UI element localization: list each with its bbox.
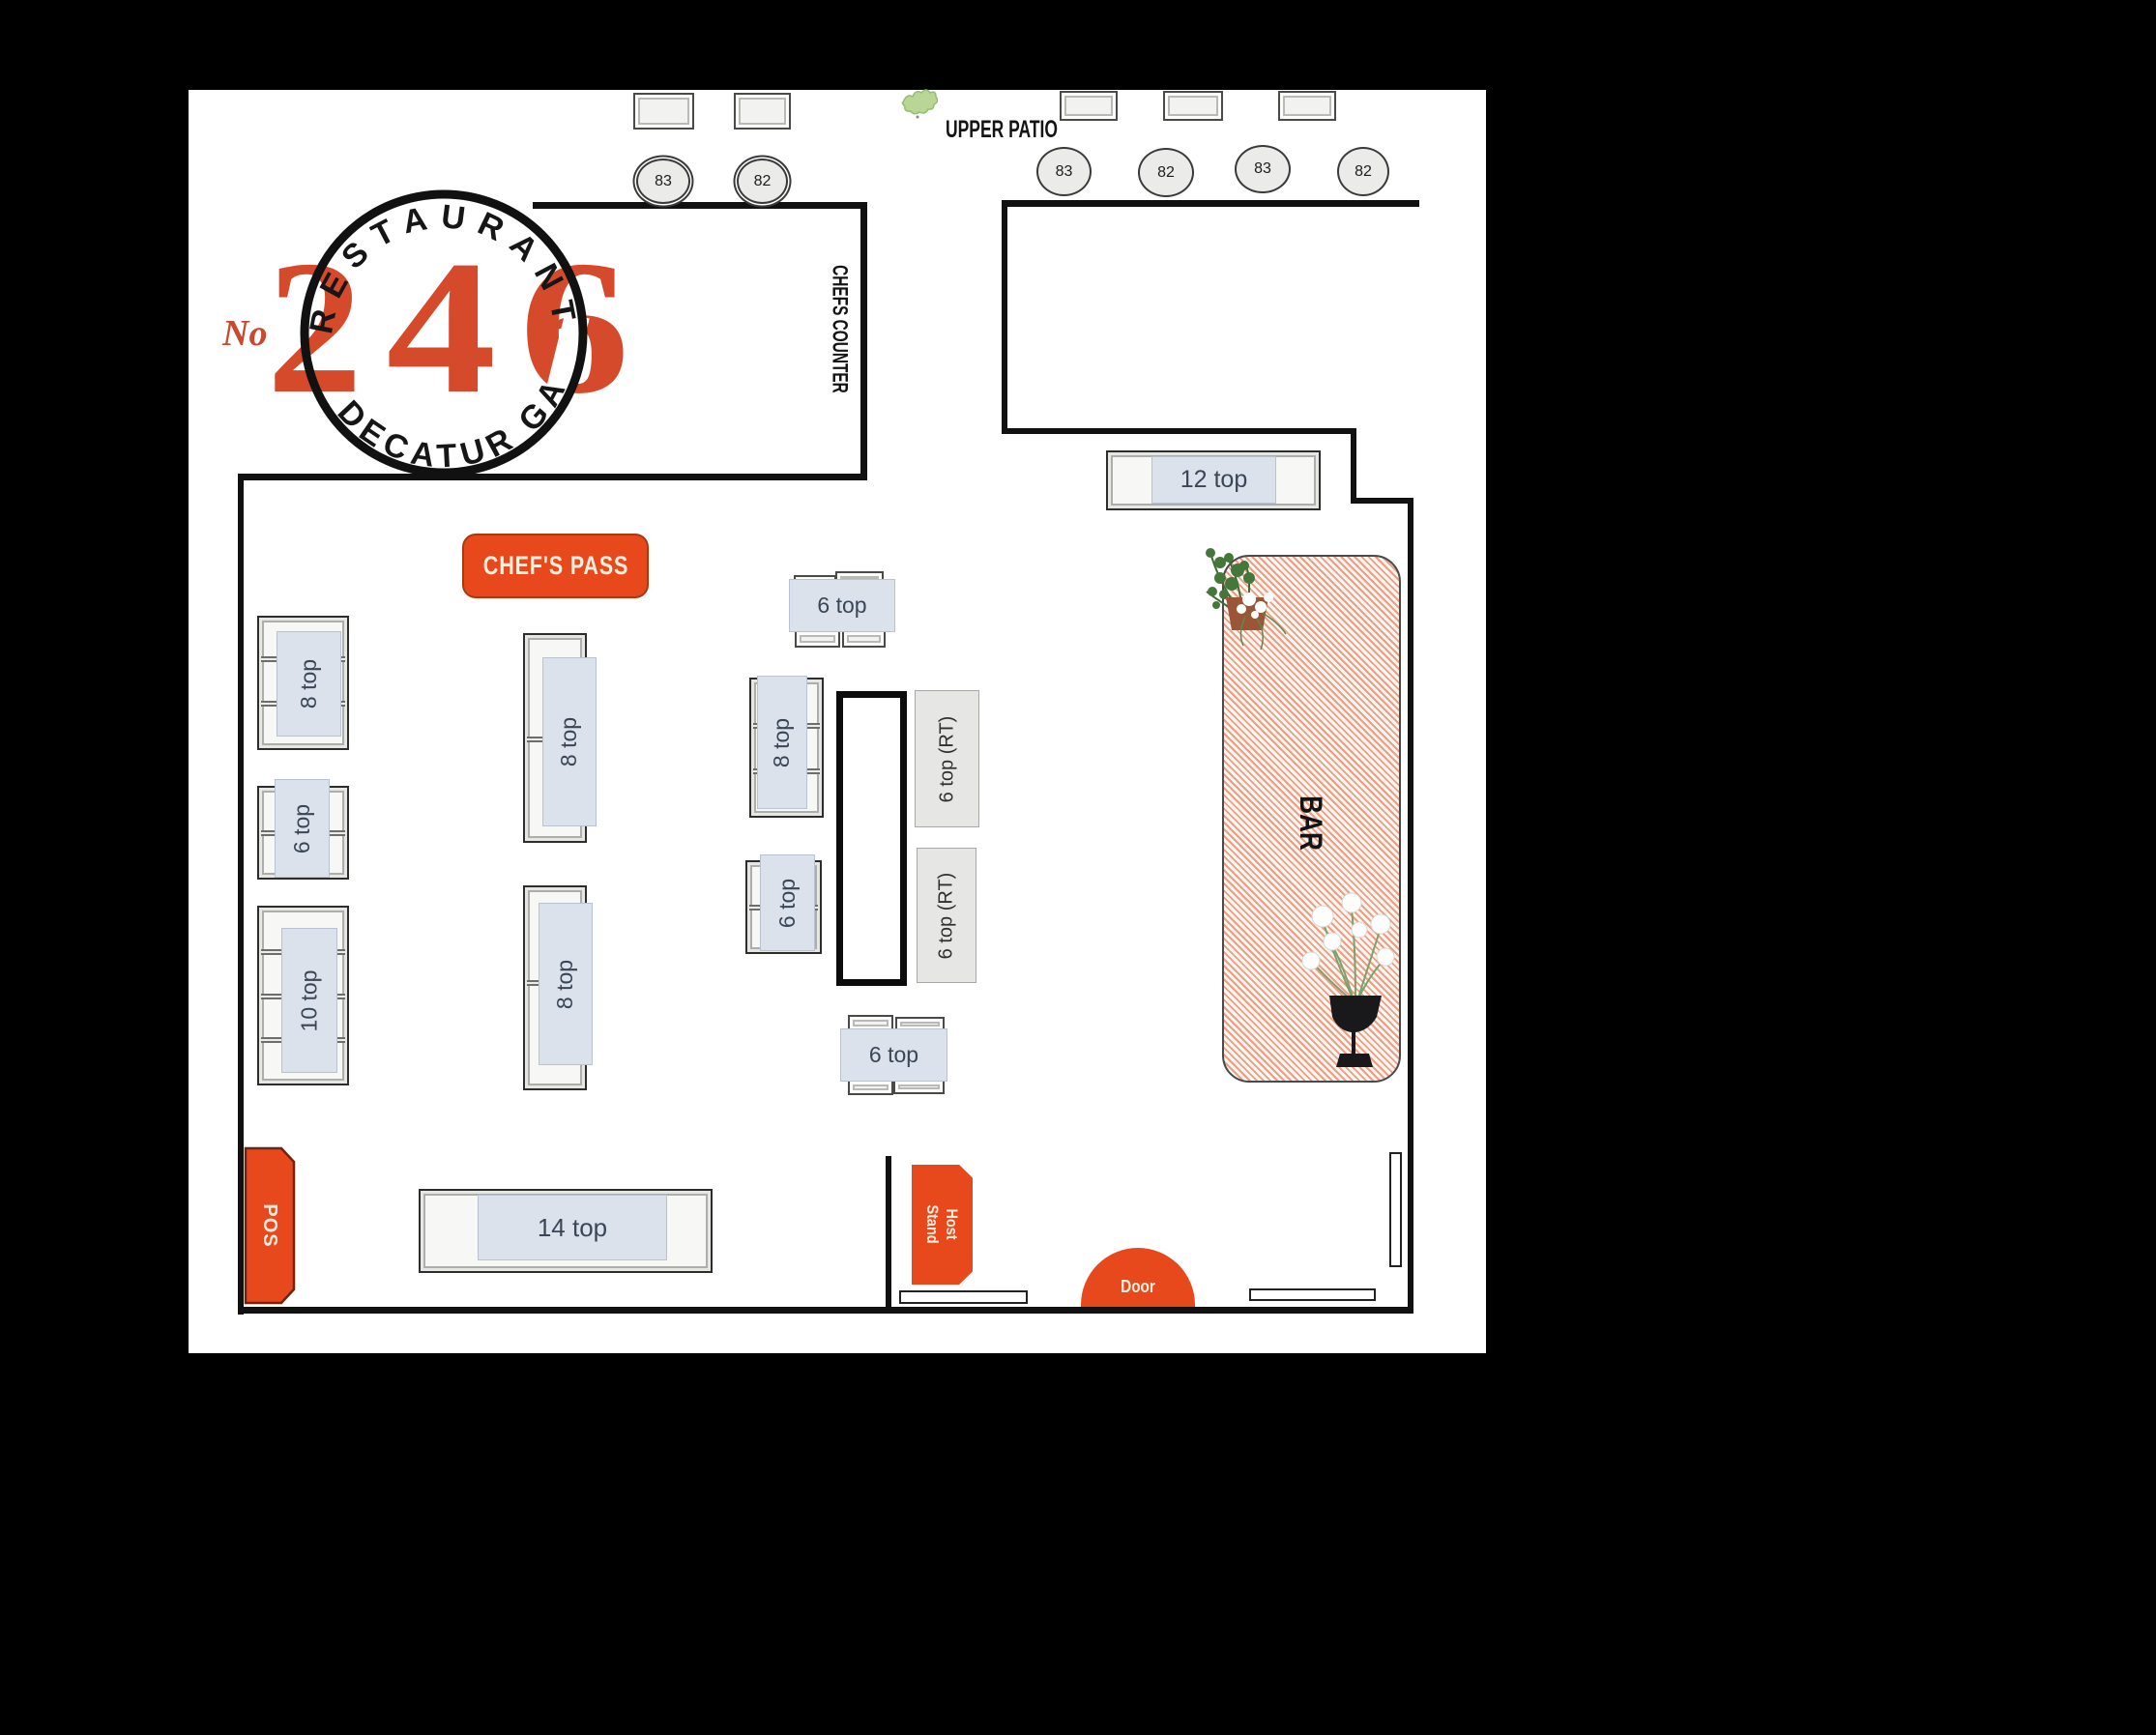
svg-text:No: No (221, 313, 267, 354)
svg-text:4: 4 (386, 222, 496, 434)
svg-text:POS: POS (259, 1203, 280, 1247)
